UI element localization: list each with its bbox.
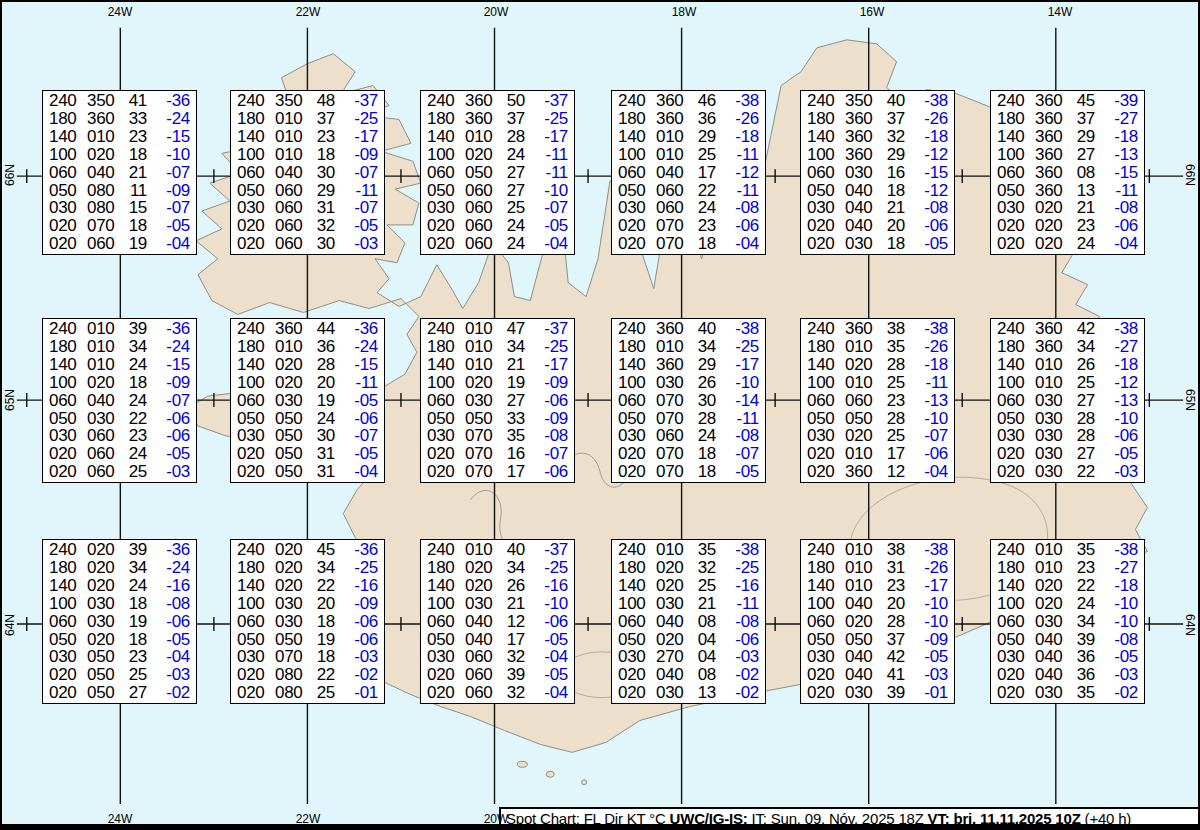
temp-value: -07 bbox=[525, 199, 568, 217]
spot-row: 18002034-24 bbox=[49, 559, 190, 577]
spot-row: 10001025-11 bbox=[807, 374, 948, 392]
temp-value: -10 bbox=[905, 613, 948, 631]
temp-value: -03 bbox=[335, 235, 378, 253]
kt-value: 35 bbox=[1071, 684, 1095, 702]
kt-value: 39 bbox=[881, 684, 905, 702]
fl-value: 030 bbox=[427, 199, 459, 217]
fl-value: 100 bbox=[807, 595, 839, 613]
kt-value: 11 bbox=[123, 182, 147, 200]
fl-value: 050 bbox=[618, 631, 650, 649]
kt-value: 08 bbox=[692, 613, 716, 631]
spot-row: 02003035-02 bbox=[997, 684, 1138, 702]
dir-value: 060 bbox=[656, 182, 688, 200]
kt-value: 19 bbox=[311, 392, 335, 410]
kt-value: 29 bbox=[881, 146, 905, 164]
kt-value: 22 bbox=[311, 577, 335, 595]
fl-value: 020 bbox=[237, 235, 269, 253]
temp-value: -36 bbox=[147, 541, 190, 559]
spot-row: 14002024-16 bbox=[49, 577, 190, 595]
dir-value: 350 bbox=[275, 92, 307, 110]
fl-value: 020 bbox=[997, 463, 1029, 481]
spot-row: 02004036-03 bbox=[997, 666, 1138, 684]
temp-value: -24 bbox=[147, 559, 190, 577]
fl-value: 140 bbox=[237, 577, 269, 595]
dir-value: 030 bbox=[465, 595, 497, 613]
fl-value: 240 bbox=[49, 92, 81, 110]
kt-value: 33 bbox=[123, 110, 147, 128]
longitude-label-top: 16W bbox=[860, 6, 885, 18]
temp-value: -05 bbox=[335, 217, 378, 235]
fl-value: 140 bbox=[49, 128, 81, 146]
temp-value: -38 bbox=[716, 92, 759, 110]
temp-value: -06 bbox=[335, 613, 378, 631]
dir-value: 360 bbox=[1035, 128, 1067, 146]
spot-row: 02008022-02 bbox=[237, 666, 378, 684]
spot-table: 24036050-3718036037-2514001028-171000202… bbox=[420, 90, 575, 255]
temp-value: -07 bbox=[716, 445, 759, 463]
temp-value: -04 bbox=[147, 648, 190, 666]
spot-row: 02003027-05 bbox=[997, 445, 1138, 463]
dir-value: 050 bbox=[275, 463, 307, 481]
spot-row: 03007035-08 bbox=[427, 427, 568, 445]
kt-value: 18 bbox=[123, 146, 147, 164]
kt-value: 23 bbox=[692, 217, 716, 235]
kt-value: 39 bbox=[1071, 631, 1095, 649]
kt-value: 13 bbox=[692, 684, 716, 702]
kt-value: 37 bbox=[1071, 110, 1095, 128]
spot-row: 02008025-01 bbox=[237, 684, 378, 702]
kt-value: 18 bbox=[123, 595, 147, 613]
kt-value: 21 bbox=[1071, 199, 1095, 217]
dir-value: 060 bbox=[845, 392, 877, 410]
fl-value: 240 bbox=[997, 541, 1029, 559]
spot-row: 10002019-09 bbox=[427, 374, 568, 392]
fl-value: 030 bbox=[427, 648, 459, 666]
temp-value: -04 bbox=[1095, 235, 1138, 253]
latitude-label-left: 64N bbox=[4, 614, 16, 636]
longitude-label-bottom: 24W bbox=[108, 813, 133, 825]
spot-row: 05005028-10 bbox=[807, 410, 948, 428]
kt-value: 32 bbox=[311, 217, 335, 235]
temp-value: -06 bbox=[147, 427, 190, 445]
fl-value: 030 bbox=[618, 427, 650, 445]
spot-row: 14002028-18 bbox=[807, 356, 948, 374]
temp-value: -09 bbox=[335, 146, 378, 164]
fl-value: 180 bbox=[618, 338, 650, 356]
kt-value: 23 bbox=[311, 128, 335, 146]
kt-value: 41 bbox=[881, 666, 905, 684]
temp-value: -38 bbox=[1095, 541, 1138, 559]
fl-value: 020 bbox=[49, 445, 81, 463]
fl-value: 050 bbox=[237, 410, 269, 428]
temp-value: -26 bbox=[716, 110, 759, 128]
spot-row: 14036029-17 bbox=[618, 356, 759, 374]
kt-value: 36 bbox=[1071, 666, 1095, 684]
dir-value: 070 bbox=[656, 463, 688, 481]
temp-value: -07 bbox=[147, 199, 190, 217]
latitude-label-left: 66N bbox=[4, 164, 16, 186]
kt-value: 25 bbox=[123, 463, 147, 481]
spot-row: 03004042-05 bbox=[807, 648, 948, 666]
kt-value: 20 bbox=[311, 595, 335, 613]
fl-value: 240 bbox=[618, 320, 650, 338]
fl-value: 060 bbox=[427, 613, 459, 631]
temp-value: -18 bbox=[905, 356, 948, 374]
spot-row: 03002025-07 bbox=[807, 427, 948, 445]
dir-value: 360 bbox=[1035, 146, 1067, 164]
temp-value: -02 bbox=[716, 666, 759, 684]
dir-value: 020 bbox=[1035, 235, 1067, 253]
spot-row: 02005031-05 bbox=[237, 445, 378, 463]
spot-row: 02007016-07 bbox=[427, 445, 568, 463]
fl-value: 050 bbox=[618, 410, 650, 428]
dir-value: 050 bbox=[275, 631, 307, 649]
kt-value: 29 bbox=[692, 356, 716, 374]
temp-value: -04 bbox=[147, 235, 190, 253]
dir-value: 020 bbox=[87, 559, 119, 577]
dir-value: 040 bbox=[465, 613, 497, 631]
fl-value: 020 bbox=[997, 445, 1029, 463]
kt-value: 20 bbox=[881, 217, 905, 235]
spot-row: 24002045-36 bbox=[237, 541, 378, 559]
spot-row: 02007018-05 bbox=[618, 463, 759, 481]
dir-value: 020 bbox=[656, 631, 688, 649]
kt-value: 28 bbox=[692, 410, 716, 428]
temp-value: -16 bbox=[716, 577, 759, 595]
dir-value: 030 bbox=[1035, 463, 1067, 481]
spot-row: 02007018-07 bbox=[618, 445, 759, 463]
dir-value: 060 bbox=[87, 427, 119, 445]
spot-row: 03027004-03 bbox=[618, 648, 759, 666]
spot-row: 24035048-37 bbox=[237, 92, 378, 110]
spot-row: 14036029-18 bbox=[997, 128, 1138, 146]
fl-value: 140 bbox=[237, 356, 269, 374]
island bbox=[546, 771, 554, 777]
fl-value: 030 bbox=[49, 427, 81, 445]
spot-row: 24035040-38 bbox=[807, 92, 948, 110]
spot-row: 02001017-06 bbox=[807, 445, 948, 463]
dir-value: 360 bbox=[656, 320, 688, 338]
kt-value: 22 bbox=[311, 666, 335, 684]
fl-value: 140 bbox=[997, 128, 1029, 146]
temp-value: -05 bbox=[525, 631, 568, 649]
spot-row: 14001024-15 bbox=[49, 356, 190, 374]
temp-value: -07 bbox=[335, 164, 378, 182]
fl-value: 050 bbox=[427, 631, 459, 649]
spot-table: 24036046-3818036036-2614001029-181000102… bbox=[611, 90, 766, 255]
spot-row: 06004030-07 bbox=[237, 164, 378, 182]
temp-value: -25 bbox=[335, 559, 378, 577]
spot-row: 05036013-11 bbox=[997, 182, 1138, 200]
kt-value: 19 bbox=[123, 235, 147, 253]
temp-value: -07 bbox=[147, 392, 190, 410]
kt-value: 46 bbox=[692, 92, 716, 110]
spot-row: 05005037-09 bbox=[807, 631, 948, 649]
fl-value: 020 bbox=[807, 463, 839, 481]
longitude-label-top: 24W bbox=[108, 6, 133, 18]
spot-row: 06004012-06 bbox=[427, 613, 568, 631]
temp-value: -04 bbox=[525, 684, 568, 702]
dir-value: 360 bbox=[1035, 320, 1067, 338]
fl-value: 240 bbox=[49, 541, 81, 559]
dir-value: 030 bbox=[656, 684, 688, 702]
dir-value: 070 bbox=[275, 648, 307, 666]
dir-value: 030 bbox=[87, 613, 119, 631]
fl-value: 050 bbox=[49, 182, 81, 200]
fl-value: 140 bbox=[427, 356, 459, 374]
spot-row: 14036032-18 bbox=[807, 128, 948, 146]
fl-value: 030 bbox=[997, 648, 1029, 666]
temp-value: -10 bbox=[1095, 613, 1138, 631]
fl-value: 180 bbox=[997, 110, 1029, 128]
kt-value: 39 bbox=[501, 666, 525, 684]
dir-value: 070 bbox=[656, 392, 688, 410]
dir-value: 040 bbox=[87, 164, 119, 182]
fl-value: 020 bbox=[807, 666, 839, 684]
kt-value: 04 bbox=[692, 631, 716, 649]
spot-row: 06003019-06 bbox=[49, 613, 190, 631]
dir-value: 010 bbox=[465, 320, 497, 338]
spot-row: 03006032-04 bbox=[427, 648, 568, 666]
temp-value: -16 bbox=[147, 577, 190, 595]
dir-value: 010 bbox=[1035, 356, 1067, 374]
fl-value: 060 bbox=[997, 164, 1029, 182]
kt-value: 18 bbox=[123, 217, 147, 235]
temp-value: -02 bbox=[147, 684, 190, 702]
spot-row: 06003019-05 bbox=[237, 392, 378, 410]
kt-value: 28 bbox=[311, 356, 335, 374]
kt-value: 22 bbox=[1071, 577, 1095, 595]
fl-value: 020 bbox=[427, 463, 459, 481]
kt-value: 26 bbox=[692, 374, 716, 392]
kt-value: 26 bbox=[1071, 356, 1095, 374]
kt-value: 40 bbox=[881, 92, 905, 110]
fl-value: 020 bbox=[49, 235, 81, 253]
kt-value: 39 bbox=[123, 541, 147, 559]
spot-table: 24035041-3618036033-2414001023-151000201… bbox=[42, 90, 197, 255]
dir-value: 010 bbox=[87, 356, 119, 374]
kt-value: 37 bbox=[881, 631, 905, 649]
temp-value: -06 bbox=[905, 445, 948, 463]
temp-value: -06 bbox=[525, 392, 568, 410]
fl-value: 060 bbox=[49, 613, 81, 631]
dir-value: 360 bbox=[845, 463, 877, 481]
kt-value: 37 bbox=[881, 110, 905, 128]
kt-value: 30 bbox=[311, 164, 335, 182]
fl-value: 240 bbox=[997, 320, 1029, 338]
spot-row: 24036046-38 bbox=[618, 92, 759, 110]
temp-value: -07 bbox=[335, 199, 378, 217]
spot-row: 03006025-07 bbox=[427, 199, 568, 217]
kt-value: 24 bbox=[501, 235, 525, 253]
fl-value: 030 bbox=[237, 199, 269, 217]
fl-value: 020 bbox=[49, 684, 81, 702]
fl-value: 180 bbox=[997, 338, 1029, 356]
spot-row: 18036033-24 bbox=[49, 110, 190, 128]
dir-value: 010 bbox=[845, 445, 877, 463]
temp-value: -38 bbox=[905, 541, 948, 559]
spot-row: 24001035-38 bbox=[618, 541, 759, 559]
kt-value: 28 bbox=[1071, 410, 1095, 428]
temp-value: -08 bbox=[716, 199, 759, 217]
spot-row: 24001040-37 bbox=[427, 541, 568, 559]
spot-table: 24001040-3718002034-2514002026-161000302… bbox=[420, 539, 575, 704]
kt-value: 34 bbox=[123, 559, 147, 577]
dir-value: 020 bbox=[275, 356, 307, 374]
dir-value: 020 bbox=[87, 374, 119, 392]
dir-value: 030 bbox=[1035, 410, 1067, 428]
dir-value: 030 bbox=[845, 164, 877, 182]
temp-value: -10 bbox=[1095, 410, 1138, 428]
spot-row: 18036034-27 bbox=[997, 338, 1138, 356]
spot-row: 05005033-09 bbox=[427, 410, 568, 428]
spot-row: 10036029-12 bbox=[807, 146, 948, 164]
temp-value: -03 bbox=[1095, 666, 1138, 684]
dir-value: 060 bbox=[465, 217, 497, 235]
temp-value: -01 bbox=[335, 684, 378, 702]
fl-value: 180 bbox=[49, 338, 81, 356]
dir-value: 050 bbox=[465, 164, 497, 182]
dir-value: 030 bbox=[275, 392, 307, 410]
temp-value: -05 bbox=[525, 666, 568, 684]
kt-value: 16 bbox=[501, 445, 525, 463]
kt-value: 04 bbox=[692, 648, 716, 666]
dir-value: 360 bbox=[1035, 164, 1067, 182]
dir-value: 360 bbox=[845, 110, 877, 128]
fl-value: 020 bbox=[807, 217, 839, 235]
fl-value: 140 bbox=[427, 128, 459, 146]
fl-value: 060 bbox=[237, 392, 269, 410]
dir-value: 060 bbox=[275, 199, 307, 217]
fl-value: 060 bbox=[807, 164, 839, 182]
longitude-label-top: 22W bbox=[296, 6, 321, 18]
kt-value: 18 bbox=[123, 631, 147, 649]
spot-row: 03005030-07 bbox=[237, 427, 378, 445]
fl-value: 180 bbox=[49, 110, 81, 128]
dir-value: 020 bbox=[275, 541, 307, 559]
kt-value: 41 bbox=[123, 92, 147, 110]
fl-value: 180 bbox=[427, 338, 459, 356]
kt-value: 17 bbox=[881, 445, 905, 463]
kt-value: 28 bbox=[881, 613, 905, 631]
fl-value: 180 bbox=[237, 559, 269, 577]
kt-value: 19 bbox=[123, 613, 147, 631]
temp-value: -09 bbox=[147, 182, 190, 200]
kt-value: 18 bbox=[123, 374, 147, 392]
kt-value: 18 bbox=[692, 463, 716, 481]
temp-value: -09 bbox=[525, 374, 568, 392]
spot-row: 18001034-24 bbox=[49, 338, 190, 356]
kt-value: 37 bbox=[311, 110, 335, 128]
fl-value: 140 bbox=[237, 128, 269, 146]
dir-value: 360 bbox=[845, 320, 877, 338]
temp-value: -03 bbox=[905, 666, 948, 684]
spot-row: 03005023-04 bbox=[49, 648, 190, 666]
fl-value: 020 bbox=[427, 217, 459, 235]
dir-value: 010 bbox=[845, 338, 877, 356]
dir-value: 360 bbox=[845, 146, 877, 164]
temp-value: -17 bbox=[525, 356, 568, 374]
dir-value: 030 bbox=[465, 392, 497, 410]
dir-value: 350 bbox=[845, 92, 877, 110]
spot-row: 06004008-08 bbox=[618, 613, 759, 631]
kt-value: 24 bbox=[311, 410, 335, 428]
dir-value: 020 bbox=[1035, 577, 1067, 595]
dir-value: 010 bbox=[465, 541, 497, 559]
fl-value: 100 bbox=[427, 146, 459, 164]
spot-row: 02007023-06 bbox=[618, 217, 759, 235]
fl-value: 020 bbox=[49, 463, 81, 481]
spot-table: 24035040-3818036037-2614036032-181003602… bbox=[800, 90, 955, 255]
kt-value: 17 bbox=[501, 463, 525, 481]
fl-value: 180 bbox=[618, 559, 650, 577]
kt-value: 24 bbox=[692, 427, 716, 445]
dir-value: 070 bbox=[465, 427, 497, 445]
dir-value: 080 bbox=[87, 199, 119, 217]
fl-value: 020 bbox=[618, 463, 650, 481]
fl-value: 020 bbox=[427, 666, 459, 684]
dir-value: 030 bbox=[656, 595, 688, 613]
kt-value: 18 bbox=[311, 648, 335, 666]
kt-value: 16 bbox=[881, 164, 905, 182]
temp-value: -10 bbox=[525, 595, 568, 613]
kt-value: 18 bbox=[311, 146, 335, 164]
dir-value: 060 bbox=[87, 445, 119, 463]
dir-value: 060 bbox=[275, 235, 307, 253]
kt-value: 25 bbox=[692, 146, 716, 164]
fl-value: 100 bbox=[997, 595, 1029, 613]
temp-value: -36 bbox=[335, 541, 378, 559]
temp-value: -09 bbox=[335, 595, 378, 613]
dir-value: 020 bbox=[465, 146, 497, 164]
dir-value: 060 bbox=[87, 235, 119, 253]
spot-row: 03007018-03 bbox=[237, 648, 378, 666]
dir-value: 020 bbox=[465, 577, 497, 595]
kt-value: 34 bbox=[1071, 613, 1095, 631]
temp-value: -06 bbox=[905, 217, 948, 235]
spot-row: 05006029-11 bbox=[237, 182, 378, 200]
spot-table: 24001038-3818001031-2614001023-171000402… bbox=[800, 539, 955, 704]
spot-row: 24036038-38 bbox=[807, 320, 948, 338]
spot-row: 02006019-04 bbox=[49, 235, 190, 253]
dir-value: 070 bbox=[656, 235, 688, 253]
kt-value: 27 bbox=[501, 392, 525, 410]
temp-value: -11 bbox=[716, 410, 759, 428]
fl-value: 180 bbox=[997, 559, 1029, 577]
dir-value: 020 bbox=[465, 374, 497, 392]
temp-value: -12 bbox=[716, 164, 759, 182]
dir-value: 040 bbox=[87, 392, 119, 410]
dir-value: 010 bbox=[656, 146, 688, 164]
temp-value: -08 bbox=[905, 199, 948, 217]
temp-value: -12 bbox=[905, 146, 948, 164]
spot-row: 02007017-06 bbox=[427, 463, 568, 481]
fl-value: 100 bbox=[807, 374, 839, 392]
spot-row: 03006023-06 bbox=[49, 427, 190, 445]
temp-value: -06 bbox=[1095, 217, 1138, 235]
spot-row: 24001039-36 bbox=[49, 320, 190, 338]
temp-value: -13 bbox=[1095, 146, 1138, 164]
spot-row: 03008015-07 bbox=[49, 199, 190, 217]
dir-value: 040 bbox=[845, 648, 877, 666]
spot-table: 24036044-3618001036-2414002028-151000202… bbox=[230, 318, 385, 483]
dir-value: 060 bbox=[465, 235, 497, 253]
dir-value: 030 bbox=[1035, 445, 1067, 463]
kt-value: 21 bbox=[501, 356, 525, 374]
kt-value: 25 bbox=[123, 666, 147, 684]
dir-value: 040 bbox=[656, 164, 688, 182]
spot-table: 24001039-3618001034-2414001024-151000201… bbox=[42, 318, 197, 483]
